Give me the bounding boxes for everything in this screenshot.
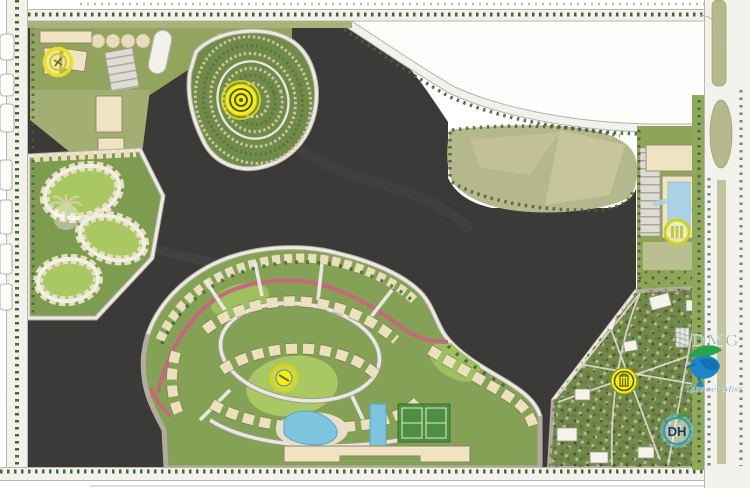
master-plan-map: DMG Tatweer Misr DH bbox=[0, 0, 750, 488]
marker-southeast-village bbox=[611, 368, 637, 394]
marker-central-village bbox=[271, 365, 297, 391]
road-bottom bbox=[0, 467, 750, 488]
offsite-buildings-west bbox=[0, 34, 14, 310]
marker-northwest-block bbox=[45, 49, 72, 76]
median-island bbox=[710, 100, 732, 168]
road-median bbox=[717, 180, 726, 464]
lap-pool bbox=[370, 404, 386, 448]
road-left bbox=[0, 0, 28, 488]
map-canvas: DMG Tatweer Misr DH bbox=[0, 0, 750, 488]
dh-logo-text: DH bbox=[668, 424, 687, 439]
tennis-courts bbox=[398, 404, 450, 442]
building-block bbox=[646, 145, 696, 171]
parcel-olive-field bbox=[447, 125, 637, 212]
tatweer-logo-text: Tatweer Misr bbox=[685, 385, 743, 395]
marker-east-complex bbox=[665, 220, 689, 244]
plaza bbox=[643, 242, 693, 270]
marker-north-village bbox=[222, 81, 260, 119]
